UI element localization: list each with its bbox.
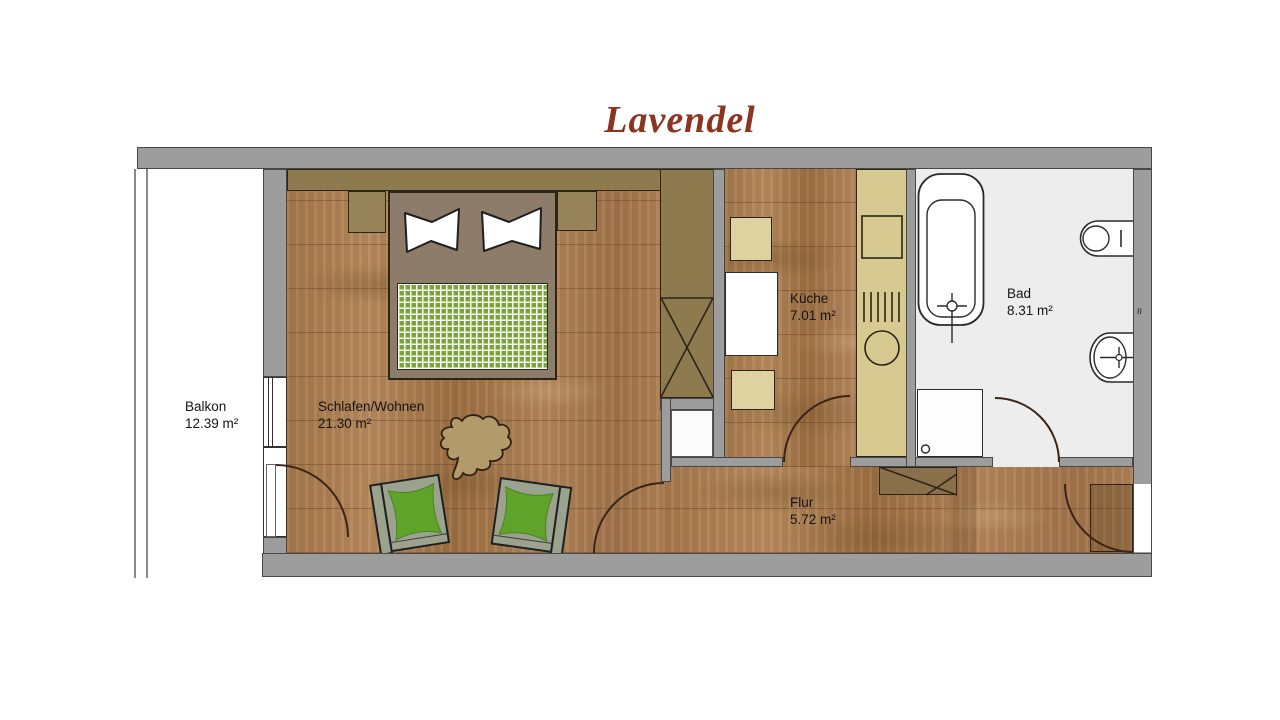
wall-kitchen-bath-divider <box>906 169 916 467</box>
room-name: Schlafen/Wohnen <box>318 399 424 416</box>
kitchen-chair-bottom <box>731 370 775 410</box>
kitchen-table <box>725 272 778 356</box>
shower <box>917 389 983 457</box>
headboard-shelf <box>287 169 661 191</box>
room-label-flur: Flur 5.72 m² <box>790 495 836 528</box>
armchair-right-cushion <box>493 479 559 550</box>
floor-plan: Lavendel <box>0 0 1280 720</box>
nightstand-left <box>348 191 386 233</box>
room-name: Bad <box>1007 286 1053 303</box>
wall-balcony-lower <box>263 537 287 554</box>
bed-blanket <box>397 283 548 370</box>
kitchen-counter <box>856 169 908 457</box>
entrance-door-opening <box>1134 484 1151 552</box>
room-label-kueche: Küche 7.01 m² <box>790 291 836 324</box>
nightstand-right <box>557 191 597 231</box>
balcony-railing-outer <box>134 169 136 578</box>
wall-bath-bottom-right <box>1059 457 1133 467</box>
wall-balcony-upper <box>263 169 287 377</box>
room-name: Flur <box>790 495 836 512</box>
wall-niche-left <box>661 398 671 482</box>
entrance-door-leaf <box>1090 484 1133 552</box>
room-area: 21.30 m² <box>318 416 424 433</box>
window-balcony-mullion-2 <box>272 377 273 447</box>
room-name: Balkon <box>185 399 238 416</box>
plan-title: Lavendel <box>520 98 840 142</box>
balcony-door-leaf <box>266 464 276 537</box>
wall-bottom <box>262 553 1152 577</box>
room-area: 7.01 m² <box>790 308 836 325</box>
room-name: Küche <box>790 291 836 308</box>
window-balcony <box>263 377 287 447</box>
wall-top <box>137 147 1152 169</box>
balcony-railing-inner <box>146 169 148 578</box>
kitchen-chair-top <box>730 217 772 261</box>
room-label-balkon: Balkon 12.39 m² <box>185 399 238 432</box>
service-niche <box>671 410 713 457</box>
wall-kitchen-bath-bottom <box>850 457 993 467</box>
room-label-bad: Bad 8.31 m² <box>1007 286 1053 319</box>
room-label-schlafen-wohnen: Schlafen/Wohnen 21.30 m² <box>318 399 424 432</box>
wall-break-symbol: ≈ <box>1132 308 1146 315</box>
window-balcony-mullion-1 <box>268 377 269 447</box>
armchair-right <box>491 477 562 553</box>
armchair-left-cushion <box>382 476 448 550</box>
room-area: 8.31 m² <box>1007 303 1053 320</box>
hall-cabinet <box>879 467 957 495</box>
room-area: 12.39 m² <box>185 416 238 433</box>
armchair-left <box>380 474 450 553</box>
built-in-wardrobe <box>660 169 714 398</box>
wall-hall-kitchen <box>671 457 783 467</box>
wall-kitchen-left <box>713 169 725 467</box>
room-area: 5.72 m² <box>790 512 836 529</box>
